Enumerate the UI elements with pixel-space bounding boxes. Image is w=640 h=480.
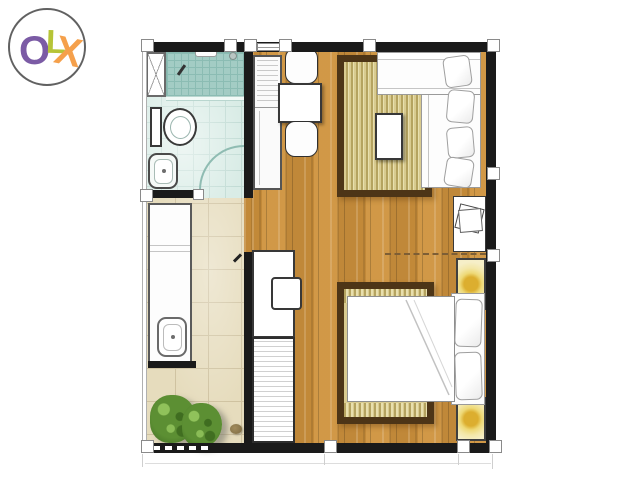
bathroom-right-wall: [244, 42, 253, 198]
column-marker: [141, 440, 154, 453]
side-table: [453, 196, 486, 252]
sofa-pillow: [443, 156, 475, 189]
kitchen-sink: [157, 317, 187, 357]
dimension-tick: [142, 454, 143, 467]
counter-base-wall: [148, 361, 196, 368]
toilet-tank: [150, 107, 162, 147]
cabinet-shelf-lines: [257, 59, 278, 105]
column-marker: [487, 167, 500, 180]
column-marker: [141, 39, 154, 52]
column-marker: [489, 440, 502, 453]
top-wall: [145, 42, 496, 52]
olx-logo: O L X: [8, 8, 86, 86]
shower-drain: [229, 52, 237, 60]
toilet-seat: [170, 116, 191, 139]
bed-pillow: [454, 299, 483, 348]
dining-table: [278, 83, 322, 123]
cabinet-divider: [255, 107, 280, 108]
column-marker: [487, 39, 500, 52]
dining-chair: [285, 121, 318, 157]
right-wall: [486, 42, 496, 453]
column-marker: [193, 189, 204, 200]
double-bed: [347, 296, 455, 402]
bathroom-cabinet: [146, 52, 166, 97]
doorway-floor-patch: [244, 198, 252, 252]
cabinet-divider: [259, 111, 260, 185]
column-marker: [457, 440, 470, 453]
bed-fold-lines: [348, 297, 454, 401]
counter-divider: [150, 251, 190, 252]
column-marker: [324, 440, 337, 453]
wall-notch: [165, 446, 172, 450]
column-marker: [224, 39, 237, 52]
wall-notch: [201, 446, 208, 450]
column-marker: [279, 39, 292, 52]
column-marker: [140, 189, 153, 202]
dimension-tick: [458, 454, 459, 465]
bed-pillow: [454, 352, 483, 401]
column-marker: [363, 39, 376, 52]
olx-listing-image: O L X: [0, 0, 640, 480]
floor-plan: [140, 25, 506, 471]
faucet-dot: [162, 169, 166, 173]
dimension-line: [145, 463, 491, 464]
pebble: [230, 424, 242, 434]
desk-chair: [271, 277, 302, 310]
sofa-seat-line: [428, 95, 429, 187]
divider-wall: [244, 252, 252, 443]
sofa-pillow: [442, 54, 473, 88]
kitchen-faucet-dot: [171, 335, 175, 339]
window-line: [258, 47, 280, 48]
wall-notch: [189, 446, 196, 450]
rug-fringe: [344, 403, 427, 417]
column-marker: [244, 39, 257, 52]
counter-divider: [150, 245, 190, 246]
dimension-tick: [324, 454, 325, 465]
left-boundary-rail: [142, 42, 147, 453]
bathroom-sink: [148, 153, 178, 189]
sofa-pillow: [446, 89, 476, 124]
dining-chair: [285, 48, 318, 84]
wall-notch: [153, 446, 160, 450]
bottom-wall: [145, 443, 496, 453]
sofa-pillow: [446, 126, 476, 159]
shower-glass-partition: [166, 96, 244, 101]
coffee-table: [375, 113, 403, 160]
top-wall-window: [257, 43, 281, 51]
wall-notch: [177, 446, 184, 450]
wardrobe: [252, 337, 295, 443]
toilet-bowl: [163, 108, 197, 146]
column-marker: [487, 249, 500, 262]
paper-sheet: [458, 208, 483, 233]
bathroom-bottom-wall: [145, 190, 200, 198]
partition-dashed-line: [385, 253, 486, 255]
dimension-tick: [492, 454, 493, 469]
sofa-seat-line: [378, 88, 480, 89]
